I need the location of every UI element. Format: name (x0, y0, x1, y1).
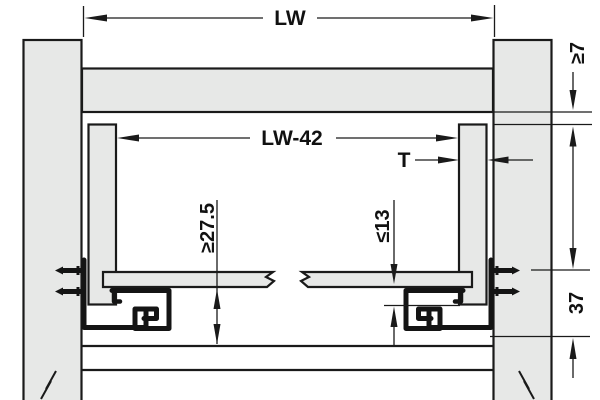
dim-min27-label: ≥27.5 (197, 203, 219, 253)
runner-drawer-profile (112, 291, 169, 329)
cabinet-side-panel (24, 40, 82, 400)
dim-lw: LW (84, 5, 495, 37)
dim-t-label: T (398, 149, 411, 172)
cabinet-top-rail (82, 69, 493, 113)
dim-lw-label: LW (274, 7, 306, 30)
dim-lw-minus-42: LW-42 (117, 127, 458, 150)
drawer-runner-installation-drawing: LW LW-42 T ≥7 37 ≥ (0, 0, 600, 400)
dim-lw42-label: LW-42 (261, 127, 322, 150)
dim-37-label: 37 (566, 292, 588, 314)
drawer-bottom-panel (103, 272, 274, 287)
dim-min7-label: ≥7 (567, 42, 589, 64)
cabinet-bottom-rail (82, 346, 493, 370)
dim-max13-label: ≤13 (372, 209, 394, 242)
